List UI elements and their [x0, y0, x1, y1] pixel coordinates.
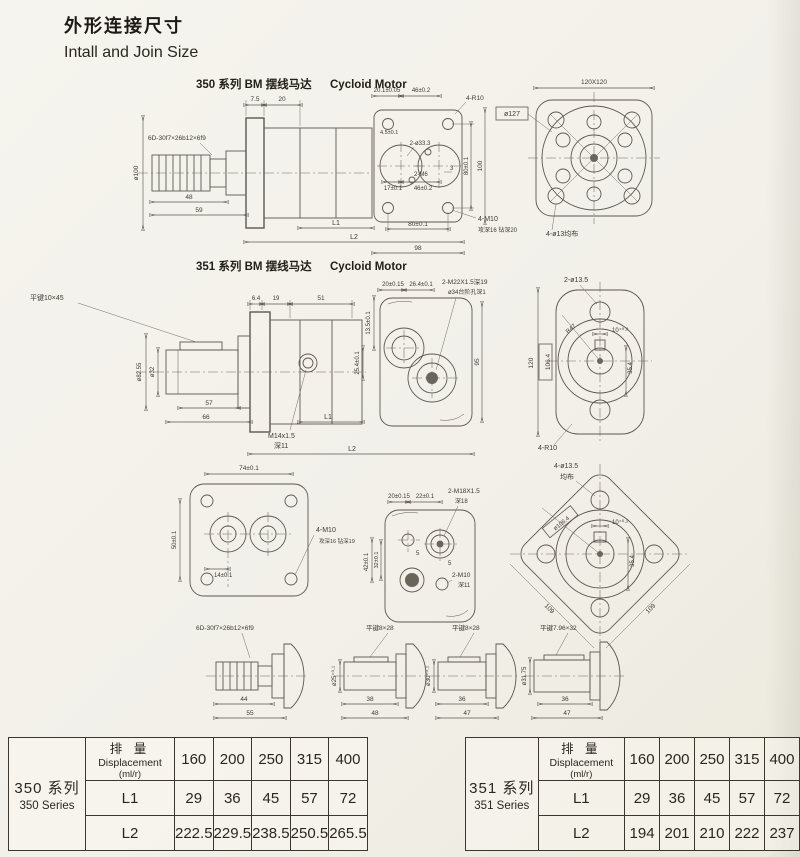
shaft3-dim-36: 36	[458, 696, 466, 703]
label-4-dia13-5: 4-ø13.5	[554, 463, 578, 470]
dim-100-right: 100	[477, 160, 484, 171]
col-250: 250	[695, 738, 730, 781]
dim-19: 19	[273, 296, 280, 302]
label-4-m10: 4-M10	[478, 216, 498, 223]
dim-48: 48	[185, 194, 193, 201]
motor-351-port-face-view: 20±0.15 26.4±0.1 2-M22X1.5深19 ø34台阶孔深1 1…	[355, 277, 488, 426]
label-2-m6: 2-M6	[414, 172, 428, 178]
scanned-catalog-page: { "title": {"zh": "外形连接尺寸", "en": "Intal…	[0, 0, 800, 857]
l1-315: 57	[729, 781, 764, 816]
label-2-m10-note: 深11	[458, 581, 471, 589]
dim-20-r3: 20±0.15	[388, 494, 410, 500]
dim-22-r3: 22±0.1	[416, 494, 435, 500]
table-351-displacement-header: 排 量 Displacement (ml/r)	[538, 738, 625, 781]
row-label-l2: L2	[86, 816, 175, 851]
dim-50: 50±0.1	[172, 530, 178, 549]
series-350-en: 350 Series	[9, 800, 85, 812]
l1-200: 36	[660, 781, 695, 816]
table-350-series: 350 系列 350 Series 排 量 Displacement (ml/r…	[8, 737, 368, 851]
label-4-r10-351: 4-R10	[538, 445, 557, 452]
page-title-block: 外形连接尺寸 Intall and Join Size	[64, 12, 198, 62]
motor-351-side-view: 平键10×45 ø82.55 ø32 6.4 19 51 M14x1.5 深11…	[30, 293, 472, 454]
col-200: 200	[213, 738, 252, 781]
l1-160: 29	[625, 781, 660, 816]
label-m18-note: 深18	[455, 497, 468, 505]
l2-400: 237	[764, 816, 799, 851]
dim-13-5: 13.5±0.1	[366, 311, 372, 335]
dim-3: 3	[450, 166, 454, 172]
dim-20-1: 20.1±0.05	[374, 88, 401, 94]
l2-250: 238.5	[252, 816, 291, 851]
dim-4-5: 4.5±0.1	[380, 130, 398, 136]
motor-351-flange-view: 2-ø13.5 R47 10⁺⁰·² 35.4 120 106.4 4-R10	[528, 277, 652, 452]
l1-250: 45	[695, 781, 730, 816]
l1-250: 45	[252, 781, 291, 816]
dim-109-right: 109	[645, 602, 658, 615]
motor-350-flange-view: 120X120 4-ø13均布	[528, 79, 660, 238]
col-160: 160	[625, 738, 660, 781]
dim-120x120: 120X120	[581, 79, 607, 86]
dim-32: 32±0.1	[374, 552, 380, 569]
label-4-r10: 4-R10	[466, 95, 484, 102]
dim-46-bot: 46±0.2	[414, 186, 433, 192]
dim-20-015: 20±0.15	[382, 282, 404, 288]
label-m14-note: 深11	[274, 441, 288, 450]
series-350-zh: 350 系列	[9, 777, 85, 798]
shaft4-dim-47: 47	[563, 710, 571, 717]
svg-text:106.4: 106.4	[545, 353, 552, 370]
dim-r47: R47	[565, 323, 578, 335]
l2-315: 250.5	[290, 816, 329, 851]
dim-dia32: ø32	[150, 366, 156, 377]
dim-42: 42±0.1	[364, 552, 370, 571]
col-250: 250	[252, 738, 291, 781]
dim-98: 98	[414, 245, 422, 252]
label-m18: 2-M18X1.5	[448, 488, 480, 495]
l2-250: 210	[695, 816, 730, 851]
col-200: 200	[660, 738, 695, 781]
dim-35-4-r3: 35.4	[630, 555, 636, 567]
dim-66: 66	[202, 414, 210, 421]
dim-14: 14±0.1	[214, 573, 233, 579]
dim-slot-10-r3: 10⁺⁰·²	[612, 519, 628, 526]
dim-dia82-55: ø82.55	[137, 362, 143, 381]
dim-46-top: 46±0.2	[412, 88, 431, 94]
row3-mount-views: 74±0.1 50±0.1 14±0.1 4-M10 攻深16 钻深19 20±…	[172, 463, 690, 648]
diamond-flange-view: 4-ø13.5 均布 ø106.4 10⁺⁰·² 35.4 109 109	[510, 463, 690, 648]
label-ports-33-3: 2-ø33.3	[410, 141, 431, 147]
series-351-en: 351 Series	[466, 800, 538, 812]
shaft4-label: 平键7.96×32	[540, 623, 577, 632]
dim-25-4: 25.4±0.1	[355, 351, 361, 375]
square-flange-view: 74±0.1 50±0.1 14±0.1 4-M10 攻深16 钻深19	[172, 465, 355, 596]
col-160: 160	[175, 738, 214, 781]
label-m14: M14x1.5	[268, 433, 295, 440]
col-315: 315	[729, 738, 764, 781]
shaft-detail-dia30: 平键8×28 ø30⁺⁰·¹ 36 47	[425, 623, 520, 718]
row4-shaft-details: 6D-30f7×26b12×6f9 44 55 平键8×28 ø25⁺⁰·¹	[196, 623, 624, 718]
shaft-detail-dia25: 平键8×28 ø25⁺⁰·¹ 38 48	[331, 623, 430, 718]
series-351-zh: 351 系列	[466, 777, 538, 798]
l2-400: 265.5	[329, 816, 368, 851]
shaft1-label: 6D-30f7×26b12×6f9	[196, 625, 254, 632]
table-351-series-cell: 351 系列 351 Series	[466, 738, 539, 851]
col-400: 400	[329, 738, 368, 781]
spline-spec-label: 6D-30f7×26b12×6f9	[148, 135, 206, 142]
label-2-m10: 2-M10	[452, 572, 471, 579]
label-key-10x45: 平键10×45	[30, 293, 64, 302]
table-350-series-cell: 350 系列 350 Series	[9, 738, 86, 851]
l1-315: 57	[290, 781, 329, 816]
row2-351-series-drawing: 351 系列 BM 摆线马达 Cycloid Motor 平键10×45 ø82…	[30, 259, 652, 454]
label-dia127: ø127	[504, 111, 520, 118]
row1-350-series-drawing: 350 系列 BM 摆线马达 Cycloid Motor 6D-30f7×26b…	[133, 77, 660, 253]
label-junbu: 均布	[560, 472, 574, 481]
shaft3-dia: ø30⁺⁰·¹	[425, 666, 432, 686]
dim-57: 57	[205, 400, 213, 407]
dim-80-right: 80±0.1	[464, 156, 470, 175]
l2-160: 194	[625, 816, 660, 851]
dim-slot-10: 10⁺⁰·²	[612, 327, 628, 334]
dim-26-4: 26.4±0.1	[409, 282, 433, 288]
shaft2-dim-48: 48	[371, 710, 379, 717]
dim-17: 17±0.1	[384, 186, 403, 192]
page-title: 外形连接尺寸	[64, 12, 198, 38]
dim-5b: 5	[448, 561, 452, 567]
shaft2-label: 平键8×28	[366, 623, 394, 632]
dim-L2-351: L2	[348, 446, 356, 453]
dim-L1: L1	[332, 220, 340, 227]
shaft4-dim-36: 36	[561, 696, 569, 703]
side-port-face-view: 20±0.15 22±0.1 2-M18X1.5 深18 42±0.1 32±0…	[364, 488, 480, 622]
col-315: 315	[290, 738, 329, 781]
l1-400: 72	[764, 781, 799, 816]
engineering-drawings: 350 系列 BM 摆线马达 Cycloid Motor 6D-30f7×26b…	[0, 72, 800, 734]
dim-L1-351: L1	[324, 414, 332, 421]
dim-51: 51	[317, 295, 325, 302]
shaft-detail-spline: 6D-30f7×26b12×6f9 44 55	[196, 625, 306, 718]
label-4-m10-r3: 4-M10	[316, 527, 336, 534]
dim-95: 95	[474, 358, 481, 366]
dim-7-5: 7.5	[250, 96, 259, 103]
label-m22: 2-M22X1.5深19	[442, 277, 488, 286]
dim-5a: 5	[416, 551, 420, 557]
l2-160: 222.5	[175, 816, 214, 851]
dim-35-4-351: 35.4	[628, 362, 634, 374]
shaft3-label: 平键8×28	[452, 623, 480, 632]
l2-200: 229.5	[213, 816, 252, 851]
shaft2-dim-38: 38	[366, 696, 374, 703]
row-label-l1: L1	[86, 781, 175, 816]
l2-315: 222	[729, 816, 764, 851]
dim-120: 120	[528, 357, 535, 368]
page-subtitle: Intall and Join Size	[64, 44, 198, 62]
l1-200: 36	[213, 781, 252, 816]
shaft3-dim-47: 47	[463, 710, 471, 717]
dim-dia100: ø100	[133, 165, 140, 180]
shaft4-dia: ø31.75	[522, 666, 528, 685]
table-351-series: 351 系列 351 Series 排 量 Displacement (ml/r…	[465, 737, 800, 851]
dim-59: 59	[195, 207, 203, 214]
series-351-label: 351 系列 BM 摆线马达	[196, 259, 312, 273]
row-label-l1: L1	[538, 781, 625, 816]
label-4-m10-note-r3: 攻深16 钻深19	[319, 537, 355, 545]
shaft1-dim-55: 55	[246, 710, 254, 717]
col-400: 400	[764, 738, 799, 781]
dim-74: 74±0.1	[239, 465, 259, 472]
series-351-type: Cycloid Motor	[330, 261, 407, 273]
shaft-detail-dia31-75: 平键7.96×32 ø31.75 36 47	[522, 623, 624, 718]
dim-106-4-boxed: 106.4	[539, 344, 552, 380]
label-4-dia13: 4-ø13均布	[546, 229, 578, 238]
label-4-m10-note: 攻深16 钻深20	[478, 226, 518, 234]
dim-6-4: 6.4	[252, 296, 261, 302]
l1-400: 72	[329, 781, 368, 816]
dim-20: 20	[278, 96, 286, 103]
l2-200: 201	[660, 816, 695, 851]
series-350-label: 350 系列 BM 摆线马达	[196, 77, 312, 91]
dim-80-bottom: 80±0.1	[408, 221, 428, 228]
label-m22-note: ø34台阶孔深1	[448, 288, 486, 296]
label-2-dia13-5: 2-ø13.5	[564, 277, 588, 284]
shaft2-dia: ø25⁺⁰·¹	[331, 666, 338, 686]
motor-350-port-face-view: 20.1±0.05 46±0.2 4.5±0.1 2-ø33.3 2-M6 17…	[374, 88, 552, 253]
shaft1-dim-44: 44	[240, 696, 248, 703]
row-label-l2: L2	[538, 816, 625, 851]
dim-L2: L2	[350, 234, 358, 241]
table-350-displacement-header: 排 量 Displacement (ml/r)	[86, 738, 175, 781]
dim-109-left: 109	[543, 603, 556, 616]
l1-160: 29	[175, 781, 214, 816]
